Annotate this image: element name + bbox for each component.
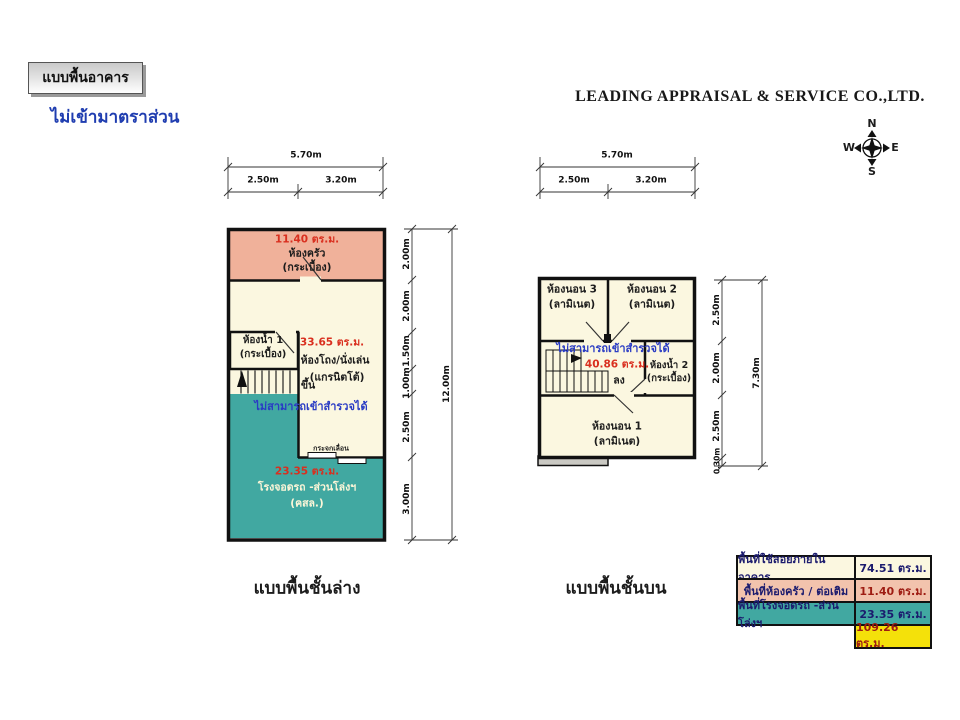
upper-floor-caption: แบบพื้นชั้นบน [566,578,667,599]
bathroom2-room-label: ห้องน้ำ 2 [650,360,688,372]
uf-dim-side-3: 0.30m [713,448,722,474]
compass-e-label: E [891,141,899,155]
hall-room-label: ห้องโถง/นั่งเล่น [301,354,370,367]
kitchen-finish-label: (กระเบื้อง) [283,261,332,274]
uf-dim-total-width: 5.70m [601,150,633,161]
hall-area-value: 33.65 ตร.ม. [300,336,364,349]
kitchen-area-value: 11.40 ตร.ม. [275,233,339,246]
compass-w-label: W [843,141,855,155]
area-row-value: 11.40 ตร.ม. [854,578,932,603]
uf-dim-side-0: 2.50m [712,294,722,326]
area-row-value: 74.51 ตร.ม. [854,555,932,580]
gf-dim-side-total: 12.00m [442,365,452,403]
area-total-value: 109.26 ตร.ม. [854,624,932,649]
carport-finish-label: (คสล.) [290,497,323,510]
compass-n-label: N [867,117,876,131]
gf-dim-seg2: 3.20m [325,175,357,186]
stairs-down-label: ลง [613,374,625,387]
gf-dim-side-0: 2.00m [402,238,412,270]
area-row-label: พื้นที่โรงจอดรถ -ส่วนโล่งฯ [736,601,856,626]
bedroom3-room-label: ห้องนอน 3 [547,283,597,296]
gf-dim-side-5: 3.00m [402,483,412,515]
sliding-door-label: กระจกเลื่อน [313,445,349,454]
bathroom1-room-label: ห้องน้ำ 1 [243,335,283,348]
uf-area-value: 40.86 ตร.ม. [585,358,649,371]
gf-dim-seg1: 2.50m [247,175,279,186]
uf-dim-side-2: 2.50m [712,410,722,442]
plan-title-box: แบบพื้นอาคาร [28,62,143,94]
bedroom2-finish-label: (ลามิเนต) [629,298,675,311]
hall-finish-label: (แกรนิตโต้) [310,371,365,384]
bedroom3-finish-label: (ลามิเนต) [549,298,595,311]
gf-dim-side-1: 2.00m [402,290,412,322]
ground-floor-caption: แบบพื้นชั้นล่าง [254,578,361,599]
uf-dim-seg1: 2.50m [558,175,590,186]
bathroom1-finish-label: (กระเบื้อง) [240,349,287,362]
bedroom1-finish-label: (ลามิเนต) [594,435,640,448]
gf-dim-side-4: 2.50m [402,411,412,443]
table-row: พื้นที่ใช้สอยภายในอาคาร 74.51 ตร.ม. [736,555,932,580]
compass-rose-icon [854,130,890,166]
uf-dim-seg2: 3.20m [635,175,667,186]
carport-room-label: โรงจอดรถ -ส่วนโล่งฯ [258,481,356,494]
bathroom2-finish-label: (กระเบื้อง) [647,373,691,385]
uf-dim-side-1: 2.00m [712,352,722,384]
carport-area-value: 23.35 ตร.ม. [275,465,339,478]
area-summary-table: พื้นที่ใช้สอยภายในอาคาร 74.51 ตร.ม. พื้น… [736,557,932,649]
bedroom1-room-label: ห้องนอน 1 [592,420,642,433]
gf-dim-total-width: 5.70m [290,150,322,161]
kitchen-room-label: ห้องครัว [289,247,326,260]
plan-title-label: แบบพื้นอาคาร [42,67,129,89]
gf-no-survey-note: ไม่สามารถเข้าสำรวจได้ [254,400,367,414]
area-row-label: พื้นที่ใช้สอยภายในอาคาร [736,555,856,580]
company-name: LEADING APPRAISAL & SERVICE CO.,LTD. [575,87,925,107]
compass-s-label: S [868,165,876,179]
uf-no-survey-note: ไม่สามารถเข้าสำรวจได้ [556,342,669,356]
gf-dim-side-2: 1.50m [402,335,412,367]
uf-dim-side-total: 7.30m [752,357,762,389]
floor-plan-page: แบบพื้นอาคาร ไม่เข้ามาตราส่วน LEADING AP… [0,0,960,720]
gf-dim-side-3: 1.00m [402,367,412,399]
scale-note: ไม่เข้ามาตราส่วน [51,107,180,128]
bedroom2-room-label: ห้องนอน 2 [627,283,677,296]
stairs-up-label: ขึ้น [301,379,315,392]
